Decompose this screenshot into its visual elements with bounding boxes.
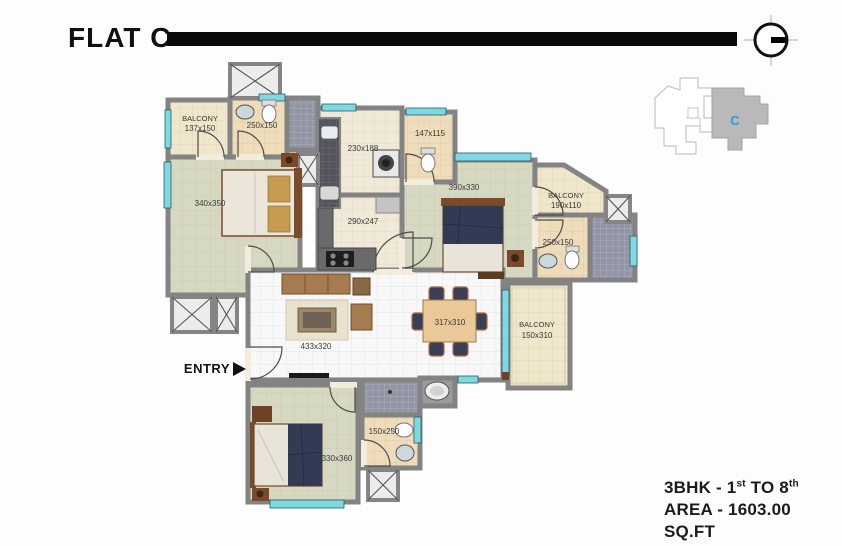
window-icon	[630, 236, 637, 266]
label-balcony-rt-dim: 190x110	[551, 201, 582, 210]
label-bath-r-dim: 250x150	[543, 238, 574, 247]
window-icon	[270, 500, 344, 508]
window-icon	[455, 153, 531, 161]
label-balcony-tl-dim: 137x150	[185, 124, 216, 133]
label-balcony-rm-dim: 150x310	[522, 331, 553, 340]
label-balcony-tl-name: BALCONY	[182, 114, 218, 123]
window-icon	[164, 162, 171, 208]
tv-unit	[289, 373, 329, 378]
label-living-dim: 433x320	[301, 342, 332, 351]
label-bedroom-b-dim: 330x360	[322, 454, 353, 463]
label-wc-dim: 147x115	[415, 129, 446, 138]
key-plan-unit-highlight	[712, 88, 768, 150]
window-icon	[165, 110, 171, 148]
key-plan-unit-label: C	[730, 113, 740, 128]
label-dining-dim: 317x310	[435, 318, 466, 327]
key-plan: C	[655, 78, 768, 154]
room-shower-right	[590, 215, 635, 280]
entry-arrow-icon	[233, 362, 246, 376]
label-bedroom-tl-dim: 340x350	[195, 199, 226, 208]
area-line: AREA - 1603.00 SQ.FT	[664, 499, 842, 543]
label-balcony-rm-name: BALCONY	[519, 320, 555, 329]
floor-plan-page: FLAT C	[0, 0, 842, 546]
flat-type-line: 3BHK - 1st TO 8th	[664, 477, 842, 499]
window-icon	[458, 376, 478, 383]
label-utility-dim: 230x188	[348, 144, 379, 153]
window-icon	[322, 104, 356, 111]
sliding-door-icon	[502, 290, 509, 375]
window-icon	[414, 417, 421, 443]
label-balcony-rt-name: BALCONY	[548, 191, 584, 200]
wardrobe	[478, 272, 504, 279]
flat-type-sup2: th	[789, 478, 799, 489]
key-plan-outline	[655, 78, 716, 154]
label-kitchen-dim: 290x247	[348, 217, 379, 226]
flat-type-sup1: st	[736, 478, 745, 489]
compass-icon	[744, 15, 798, 66]
entry-marker: ENTRY	[184, 361, 246, 376]
label-bath-top-dim: 250x150	[247, 121, 278, 130]
entry-label: ENTRY	[184, 361, 230, 376]
room-bath-bottom	[362, 415, 420, 468]
sofa-set	[282, 274, 372, 340]
room-shower-bottom	[362, 380, 420, 415]
label-bath-b-dim: 150x250	[369, 427, 400, 436]
window-icon	[406, 108, 446, 115]
label-bedroom-r-dim: 390x330	[449, 183, 480, 192]
room-shower-top	[287, 98, 318, 150]
wc-toilet	[421, 148, 435, 172]
floor-plan-drawing: C	[0, 0, 842, 546]
plan-summary: 3BHK - 1st TO 8th AREA - 1603.00 SQ.FT	[664, 477, 842, 543]
flat-type-mid: TO 8	[746, 478, 789, 497]
flat-type-prefix: 3BHK - 1	[664, 478, 736, 497]
wash-basin	[425, 382, 449, 400]
washing-machine	[373, 150, 399, 177]
